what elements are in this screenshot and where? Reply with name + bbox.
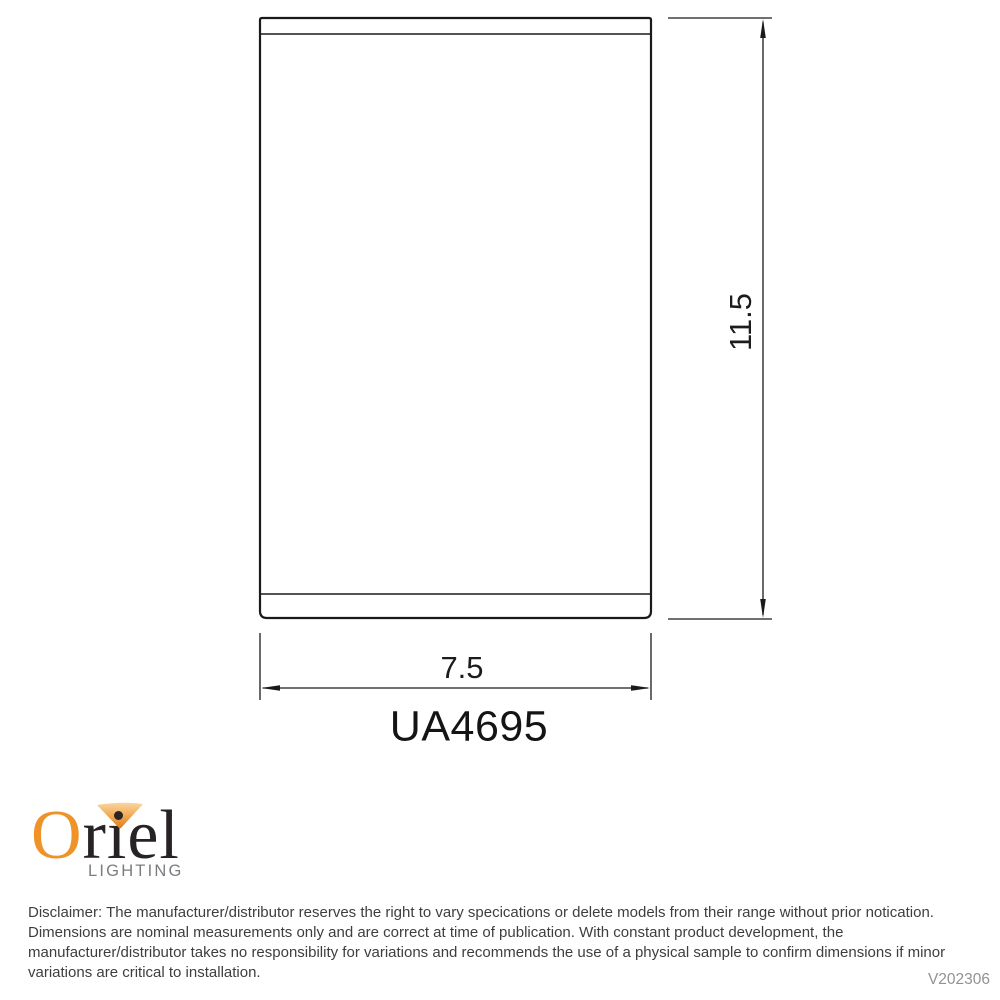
- disclaimer-line-1: Disclaimer: The manufacturer/distributor…: [28, 903, 973, 923]
- disclaimer-line-3: manufacturer/distributor takes no respon…: [28, 943, 973, 963]
- height-arrow-down-icon: [760, 599, 766, 618]
- logo-tagline: LIGHTING: [88, 862, 184, 881]
- disclaimer-line-4: variations are critical to installation.: [28, 963, 973, 983]
- product-outline: [260, 18, 651, 618]
- width-arrow-left-icon: [261, 685, 280, 691]
- width-arrow-right-icon: [631, 685, 650, 691]
- logo-letter-o: O: [31, 797, 83, 874]
- model-number: UA4695: [390, 703, 548, 752]
- version-code: V202306: [928, 971, 990, 989]
- height-dimension-label: 11.5: [723, 293, 759, 351]
- disclaimer-text: Disclaimer: The manufacturer/distributor…: [28, 903, 973, 983]
- disclaimer-line-2: Dimensions are nominal measurements only…: [28, 923, 973, 943]
- logo-bulb-dot-icon: [114, 811, 123, 820]
- width-dimension-label: 7.5: [440, 650, 483, 686]
- height-arrow-up-icon: [760, 19, 766, 38]
